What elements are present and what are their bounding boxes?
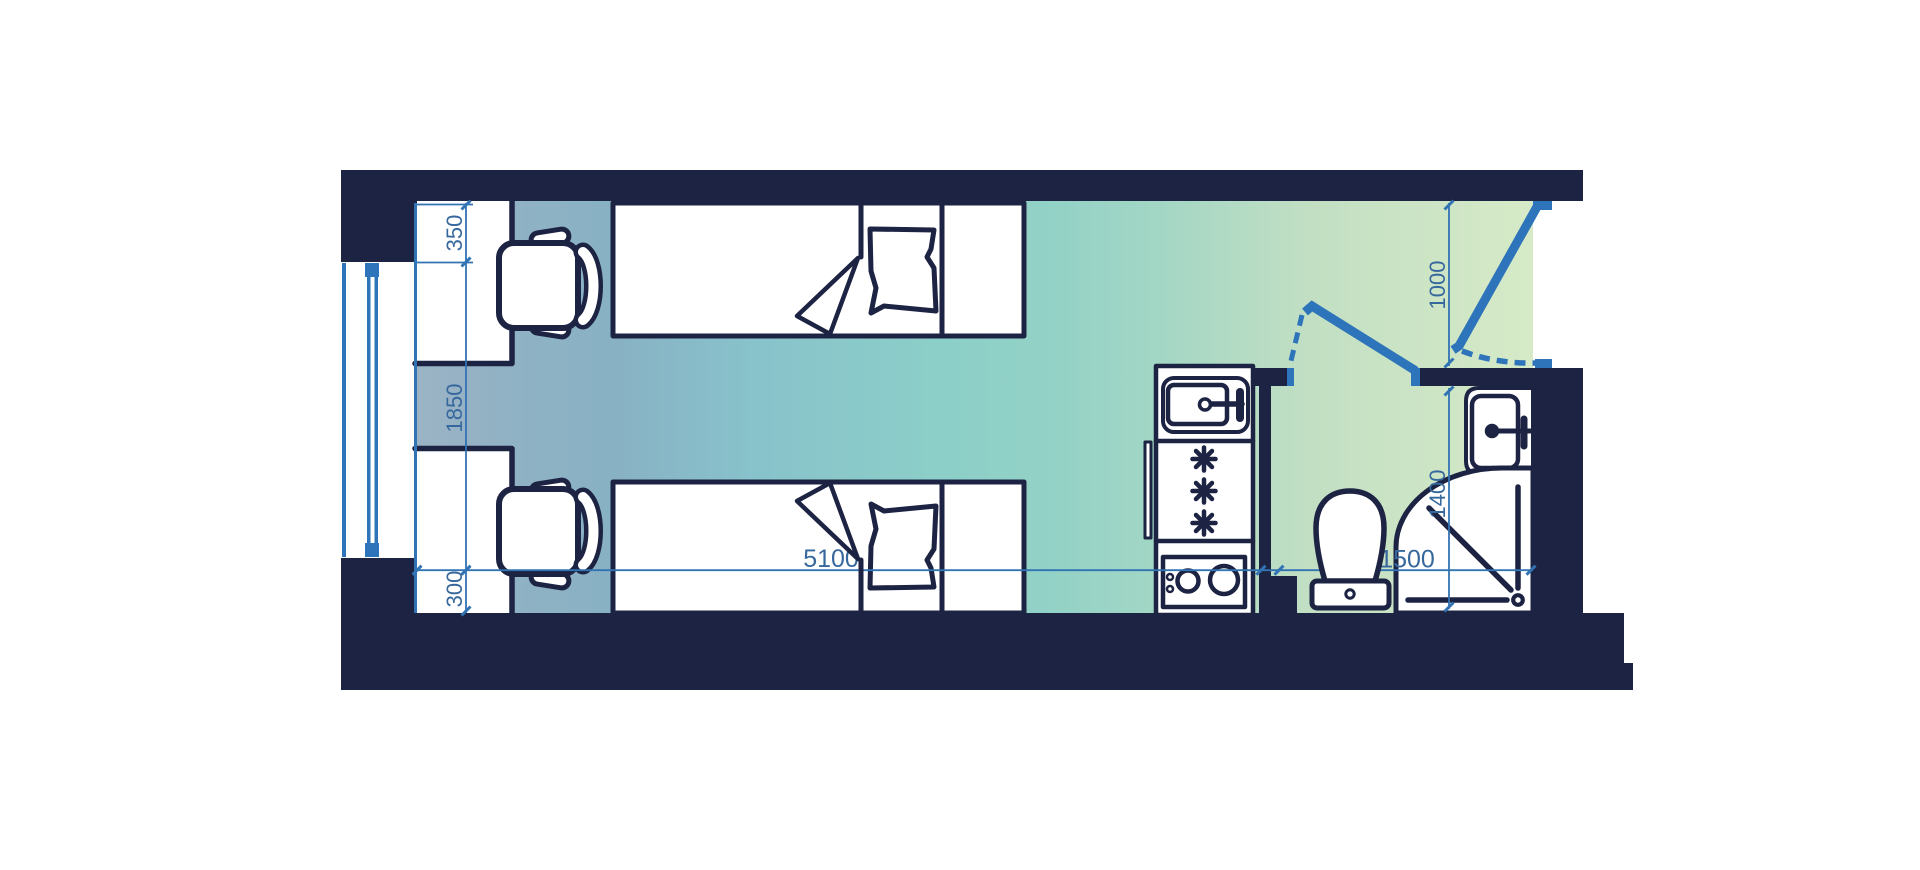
svg-text:1000: 1000 [1425, 261, 1450, 310]
svg-text:1400: 1400 [1425, 470, 1450, 519]
svg-text:1850: 1850 [442, 384, 467, 433]
svg-text:300: 300 [442, 571, 467, 608]
svg-text:350: 350 [442, 215, 467, 252]
svg-text:1500: 1500 [1379, 546, 1435, 574]
